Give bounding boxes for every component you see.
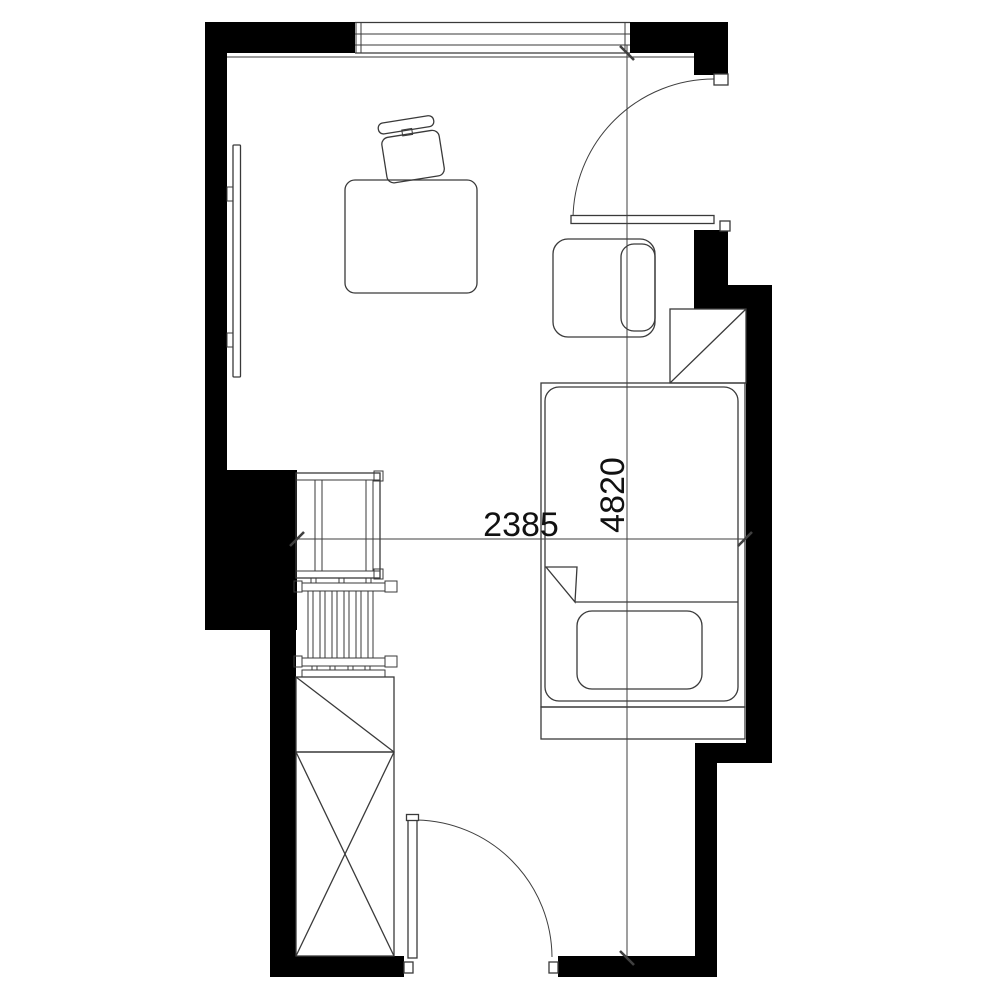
wall-tv-panel — [227, 145, 241, 377]
side-table-body — [296, 473, 380, 578]
radiator-slat — [368, 591, 373, 658]
side-table-foot — [311, 578, 316, 583]
door-stop — [549, 962, 558, 973]
door-leaf — [571, 216, 714, 224]
wall-left-lower — [270, 630, 296, 977]
side-table-post — [315, 480, 322, 571]
wall-right-upper — [694, 230, 728, 285]
bed-blanket-fold — [546, 567, 577, 602]
armchair — [553, 239, 655, 337]
radiator-bottom-plate — [302, 658, 385, 666]
radiator-base — [302, 670, 385, 677]
door-stop — [714, 74, 728, 85]
door-leaf — [408, 820, 417, 958]
wall-door-head — [694, 52, 728, 75]
corner-shelf-diagonal — [670, 309, 746, 383]
bed-headboard — [541, 707, 745, 739]
radiator-slat — [308, 591, 313, 658]
armchair-body — [553, 239, 655, 337]
chair-seat — [381, 129, 445, 184]
wall-right-upper-block — [694, 285, 772, 309]
radiator-cap — [385, 656, 397, 667]
radiator-foot — [348, 666, 353, 670]
wall-left-upper — [205, 22, 227, 470]
radiator-slat — [332, 591, 337, 658]
armchair-backrest — [621, 244, 655, 331]
cabinet — [296, 677, 394, 752]
door-leaf-cap — [407, 815, 419, 821]
radiator-top-plate — [302, 583, 385, 591]
door-stop — [720, 221, 730, 231]
radiator-cap — [385, 581, 397, 592]
door-stop — [404, 962, 413, 973]
bed-frame — [541, 383, 745, 707]
wardrobe — [296, 752, 394, 956]
radiator-foot — [330, 666, 335, 670]
floor-plan: 2385 4820 — [0, 0, 1000, 1000]
radiator-slat — [344, 591, 349, 658]
desk — [345, 180, 477, 293]
dimensions: 2385 4820 — [290, 45, 752, 965]
radiator — [294, 581, 397, 677]
wall-left-block — [205, 470, 297, 630]
bed — [541, 383, 745, 739]
radiator-slat — [320, 591, 325, 658]
tv-bracket — [227, 333, 233, 347]
side-table-post — [366, 480, 373, 571]
desk-chair — [377, 115, 445, 184]
wall-bottom-right — [558, 956, 717, 977]
radiator-foot — [365, 666, 370, 670]
radiator-foot — [312, 666, 317, 670]
wall-top-left — [205, 22, 355, 53]
bed-mattress — [545, 387, 738, 701]
dim-label-height: 4820 — [594, 457, 632, 533]
side-table — [296, 471, 383, 583]
window — [355, 23, 630, 54]
corner-shelf — [670, 309, 746, 383]
door-bottom — [404, 815, 558, 974]
tv-bracket — [227, 187, 233, 201]
wall-right-lower — [695, 743, 717, 977]
bed-pillow — [577, 611, 702, 689]
side-table-foot — [366, 578, 371, 583]
walls — [205, 22, 772, 977]
door-swing-arc — [573, 79, 714, 220]
side-table-foot — [339, 578, 344, 583]
door-swing-arc — [417, 820, 552, 957]
door-right — [571, 74, 730, 231]
radiator-slat — [356, 591, 361, 658]
cabinet-diagonal — [296, 677, 394, 752]
wall-bottom-left — [270, 956, 404, 977]
wall-top-right — [630, 22, 728, 53]
wall-right-mid — [746, 309, 772, 763]
tv-panel-body — [233, 145, 241, 377]
dim-label-width: 2385 — [483, 506, 559, 544]
